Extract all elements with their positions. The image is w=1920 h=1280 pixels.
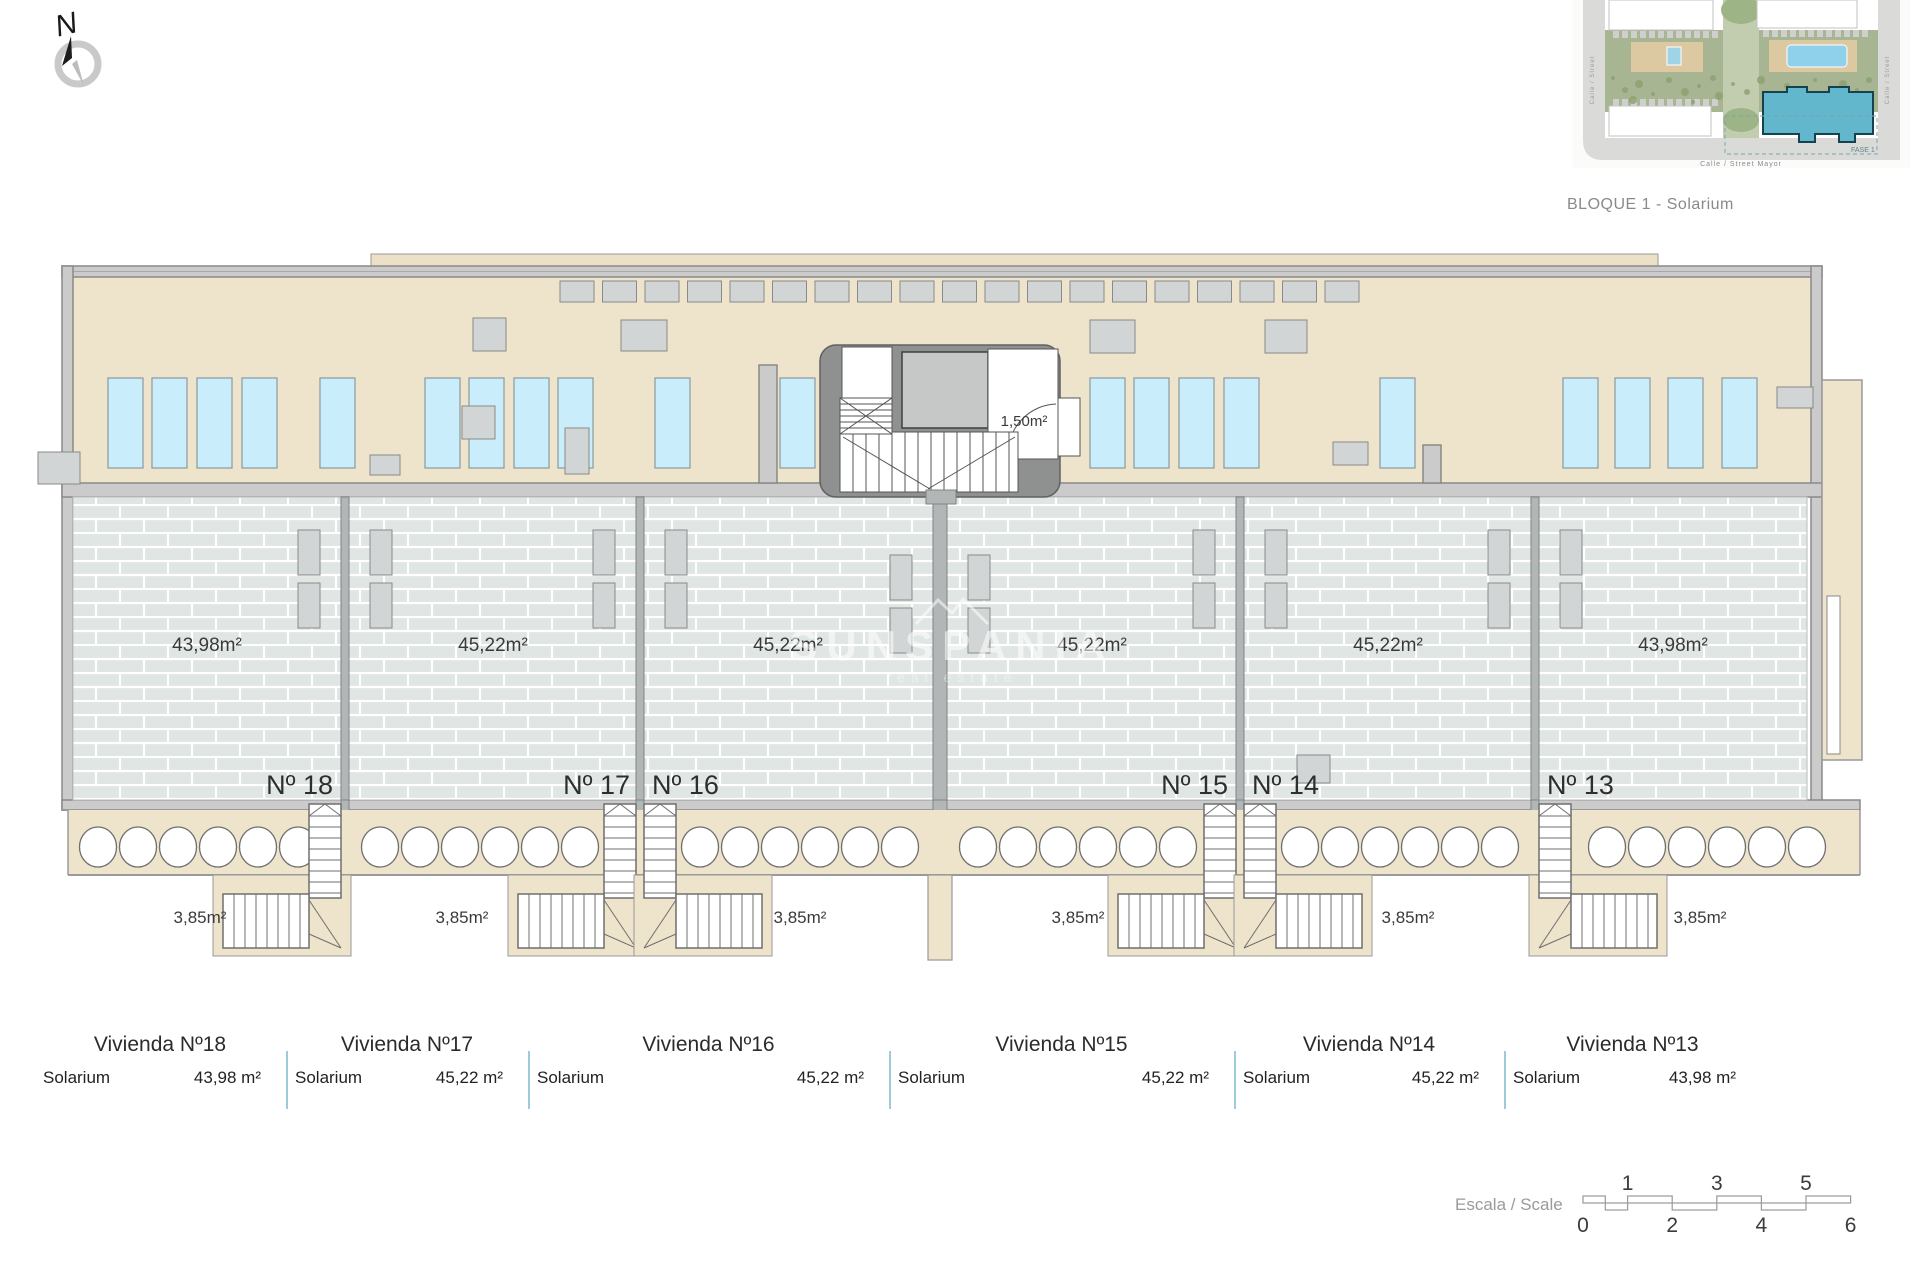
unit-divider-wall: [636, 497, 644, 800]
walkway-plant: [1589, 827, 1626, 867]
walkway-plant: [240, 827, 277, 867]
vivienda-column: Vivienda Nº14Solarium45,22 m²: [1235, 1030, 1503, 1110]
sunbed: [320, 378, 355, 468]
planter: [1155, 281, 1189, 302]
walkway-plant: [960, 827, 997, 867]
solarium-row-value: 43,98 m²: [1669, 1068, 1736, 1088]
planter: [462, 406, 495, 439]
walkway-plant: [442, 827, 479, 867]
planter: [603, 281, 637, 302]
scale-label: Escala / Scale: [1455, 1195, 1563, 1214]
planter: [1283, 281, 1317, 302]
planter: [1560, 583, 1582, 628]
terrace-divider-stub: [1423, 445, 1441, 483]
site-bloque1-highlight: [1763, 87, 1873, 142]
planter: [1193, 530, 1215, 575]
vivienda-title: Vivienda Nº14: [1235, 1030, 1503, 1060]
sunbed: [1722, 378, 1757, 468]
solarium-row-value: 45,22 m²: [797, 1068, 864, 1088]
vivienda-title: Vivienda Nº15: [890, 1030, 1233, 1060]
planter: [1113, 281, 1147, 302]
planter: [370, 583, 392, 628]
planter: [370, 455, 400, 475]
vivienda-column: Vivienda Nº13Solarium43,98 m²: [1505, 1030, 1760, 1110]
walkway-plant: [1442, 827, 1479, 867]
walkway-plant: [1629, 827, 1666, 867]
stair-core: 1,50m²: [820, 345, 1080, 504]
walkway-plant: [200, 827, 237, 867]
walkway-plant: [882, 827, 919, 867]
scale-tick: 5: [1800, 1172, 1812, 1195]
planter: [1090, 320, 1135, 353]
planter: [473, 318, 506, 351]
solarium-area-label: 45,22m²: [458, 635, 528, 656]
elevator: [902, 352, 988, 428]
sunbed: [1563, 378, 1598, 468]
unit-number-label: Nº 15: [1161, 770, 1228, 800]
compass-north-label: N: [52, 6, 81, 43]
planter: [858, 281, 892, 302]
planter: [1560, 530, 1582, 575]
walkway-plant: [1000, 827, 1037, 867]
walkway-plant: [802, 827, 839, 867]
planter: [968, 555, 990, 600]
sunbed: [655, 378, 690, 468]
site-small-pool: [1667, 47, 1681, 65]
vivienda-title: Vivienda Nº17: [287, 1030, 527, 1060]
stair-area-label: 3,85m²: [174, 908, 227, 927]
walkway-plant: [722, 827, 759, 867]
sunbed: [1668, 378, 1703, 468]
stair-area-label: 3,85m²: [1674, 908, 1727, 927]
planter: [1028, 281, 1062, 302]
stair-area-label: 3,85m²: [436, 908, 489, 927]
planter: [730, 281, 764, 302]
planter: [298, 583, 320, 628]
solarium-area-label: 43,98m²: [172, 635, 242, 656]
planter: [985, 281, 1019, 302]
walkway-plant: [402, 827, 439, 867]
site-plan-caption: BLOQUE 1 - Solarium: [1567, 196, 1734, 214]
walkway-plant: [1482, 827, 1519, 867]
vivienda-column: Vivienda Nº15Solarium45,22 m²: [890, 1030, 1233, 1110]
walkway-plant: [1322, 827, 1359, 867]
stair-area-label: 3,85m²: [1052, 908, 1105, 927]
unit-divider-wall: [1531, 497, 1539, 800]
planter: [1333, 442, 1368, 465]
vivienda-title: Vivienda Nº13: [1505, 1030, 1760, 1060]
walkway-plant: [1282, 827, 1319, 867]
scale-bar: Escala / Scale1350246: [1455, 1172, 1856, 1237]
walkway-plant: [842, 827, 879, 867]
planter: [645, 281, 679, 302]
watermark-name: SUNSPANIA: [789, 622, 1114, 669]
planter: [900, 281, 934, 302]
annex-connector: [1777, 387, 1813, 408]
scale-tick: 1: [1622, 1172, 1634, 1195]
planter: [593, 583, 615, 628]
walkway-plant: [1040, 827, 1077, 867]
street-label-right: Calle / Street: [1885, 56, 1891, 105]
site-building: [1757, 0, 1857, 28]
planter: [688, 281, 722, 302]
right-annex-door: [1827, 596, 1840, 754]
building-plan: 1,50m²43,98m²Nº 183,85m²45,22m²Nº 173,85…: [38, 254, 1862, 960]
solarium-row-value: 45,22 m²: [436, 1068, 503, 1088]
walkway-plant: [1669, 827, 1706, 867]
scale-tick: 3: [1711, 1172, 1723, 1195]
walkway-plant: [1749, 827, 1786, 867]
scale-tick: 2: [1666, 1214, 1678, 1237]
floorplan-page: NFASE 1Calle / Street MayorCalle / Stree…: [0, 0, 1920, 1280]
compass: N: [52, 6, 98, 86]
planter: [1265, 530, 1287, 575]
sunbed: [1615, 378, 1650, 468]
planter: [773, 281, 807, 302]
walkway-plant: [1080, 827, 1117, 867]
site-building: [1609, 0, 1713, 30]
planter: [943, 281, 977, 302]
walkway-plant: [362, 827, 399, 867]
unit-divider-wall: [341, 497, 349, 800]
planter: [1240, 281, 1274, 302]
solarium-row-value: 43,98 m²: [194, 1068, 261, 1088]
planter: [665, 583, 687, 628]
stair-area-label: 3,85m²: [774, 908, 827, 927]
walkway-plant: [160, 827, 197, 867]
solarium-row-value: 45,22 m²: [1142, 1068, 1209, 1088]
unit-number-label: Nº 17: [563, 770, 630, 800]
central-path: [928, 875, 952, 960]
walkway-plant: [80, 827, 117, 867]
solarium-row-label: Solarium: [898, 1068, 965, 1088]
street-label-left: Calle / Street: [1590, 56, 1596, 105]
unit-number-label: Nº 13: [1547, 770, 1614, 800]
core-wc-area-label: 1,50m²: [1001, 413, 1048, 430]
site-plan-thumbnail[interactable]: FASE 1Calle / Street MayorCalle / Street…: [1573, 0, 1910, 168]
walkway-plant: [120, 827, 157, 867]
core-door-slot: [1058, 398, 1080, 456]
planter: [621, 320, 667, 351]
sunbed: [242, 378, 277, 468]
sunbed: [780, 378, 815, 468]
unit-number-label: Nº 14: [1252, 770, 1319, 800]
scale-tick: 0: [1577, 1214, 1589, 1237]
vivienda-column: Vivienda Nº16Solarium45,22 m²: [529, 1030, 888, 1110]
planter-box: [38, 452, 80, 484]
site-pool: [1787, 45, 1847, 67]
wall-right: [1811, 266, 1822, 810]
planter: [1193, 583, 1215, 628]
planter: [815, 281, 849, 302]
sunbed: [1380, 378, 1415, 468]
planter: [1070, 281, 1104, 302]
planter: [1265, 320, 1307, 353]
walkway-plant: [1362, 827, 1399, 867]
walkway-plant: [1120, 827, 1157, 867]
street-label-bottom: Calle / Street Mayor: [1700, 161, 1782, 168]
walkway-plant: [682, 827, 719, 867]
solarium-row-label: Solarium: [1513, 1068, 1580, 1088]
solarium-row-value: 45,22 m²: [1412, 1068, 1479, 1088]
sunbed: [152, 378, 187, 468]
sunbed: [1224, 378, 1259, 468]
sunbed: [108, 378, 143, 468]
walkway-plant: [522, 827, 559, 867]
vivienda-title: Vivienda Nº16: [529, 1030, 888, 1060]
planter: [1265, 583, 1287, 628]
planter: [560, 281, 594, 302]
walkway-plant: [1709, 827, 1746, 867]
sunbed: [1134, 378, 1169, 468]
planter: [1488, 583, 1510, 628]
planter: [665, 530, 687, 575]
solarium-row-label: Solarium: [295, 1068, 362, 1088]
planter: [1325, 281, 1359, 302]
sunbed: [1090, 378, 1125, 468]
vivienda-summary-table: Vivienda Nº18Solarium43,98 m²Vivienda Nº…: [0, 1030, 1920, 1120]
planter: [298, 530, 320, 575]
sunbed: [514, 378, 549, 468]
solarium-row-label: Solarium: [537, 1068, 604, 1088]
planter: [1198, 281, 1232, 302]
planter: [890, 555, 912, 600]
solarium-area-label: 45,22m²: [1353, 635, 1423, 656]
vivienda-column: Vivienda Nº18Solarium43,98 m²: [35, 1030, 285, 1110]
walkway-plant: [482, 827, 519, 867]
watermark-tagline: real estate: [886, 669, 1017, 685]
scale-tick: 4: [1756, 1214, 1768, 1237]
solarium-row-label: Solarium: [1243, 1068, 1310, 1088]
scale-tick: 6: [1845, 1214, 1857, 1237]
walkway-plant: [762, 827, 799, 867]
planter: [1488, 530, 1510, 575]
solarium-row-label: Solarium: [43, 1068, 110, 1088]
walkway-plant: [562, 827, 599, 867]
walkway-plant: [1402, 827, 1439, 867]
solarium-area-label: 43,98m²: [1638, 635, 1708, 656]
planter: [370, 530, 392, 575]
sunbed: [197, 378, 232, 468]
stair-area-label: 3,85m²: [1382, 908, 1435, 927]
planter: [565, 428, 589, 474]
fase1-label: FASE 1: [1851, 147, 1875, 154]
vivienda-column: Vivienda Nº17Solarium45,22 m²: [287, 1030, 527, 1110]
vivienda-title: Vivienda Nº18: [35, 1030, 285, 1060]
planter: [593, 530, 615, 575]
walkway-plant: [1789, 827, 1826, 867]
walkway-plant: [1160, 827, 1197, 867]
terrace-divider-stub: [759, 365, 777, 483]
sunbed: [1179, 378, 1214, 468]
unit-number-label: Nº 16: [652, 770, 719, 800]
site-building: [1609, 106, 1711, 136]
unit-divider-wall: [1236, 497, 1244, 800]
sunbed: [425, 378, 460, 468]
unit-number-label: Nº 18: [266, 770, 333, 800]
wall-left: [62, 266, 73, 810]
